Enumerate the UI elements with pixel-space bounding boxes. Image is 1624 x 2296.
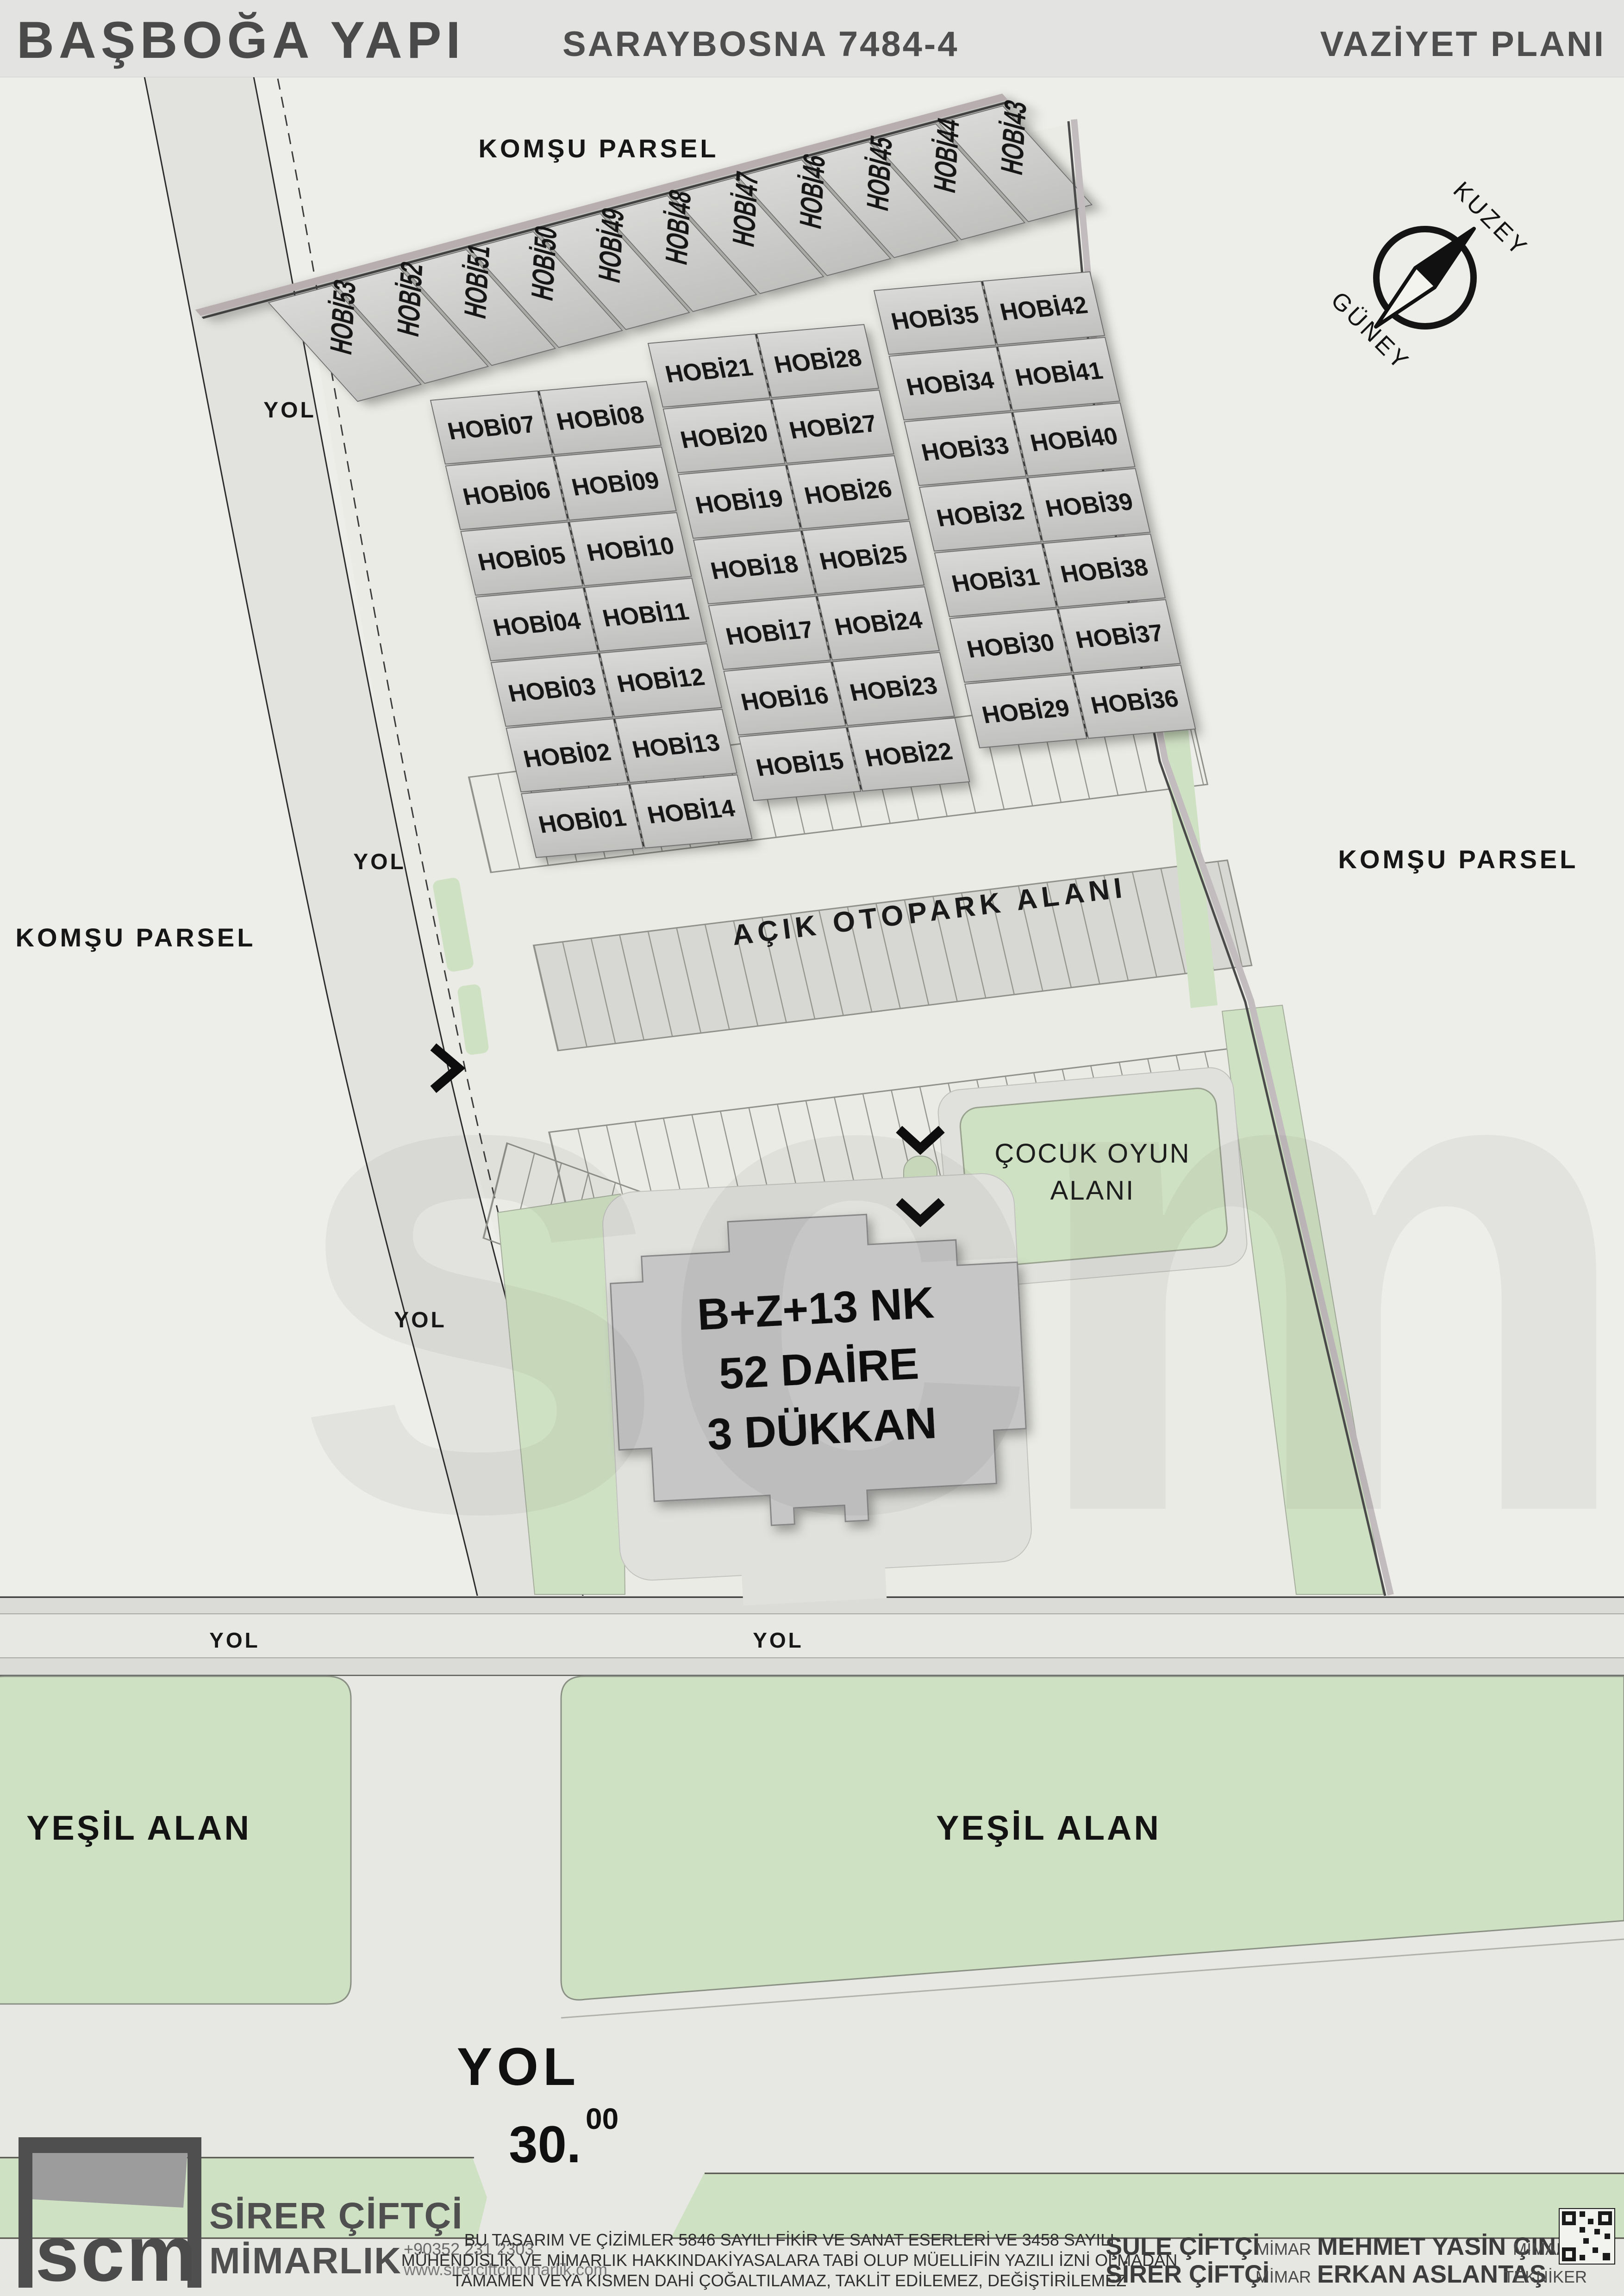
credit-title: MİMAR	[1255, 2240, 1311, 2259]
plot-label: HOBİ46	[793, 150, 832, 232]
plot-label: HOBİ48	[659, 186, 698, 268]
plot-label: HOBİ50	[525, 222, 564, 304]
legal-line-2: MÜHENDİSLİK VE MİMARLIK HAKKINDAKİYASALA…	[401, 2251, 1177, 2270]
logo-lintel	[32, 2153, 187, 2208]
watermark-text: scm	[287, 880, 1621, 1656]
label-road-big: YOL	[457, 2037, 580, 2097]
green-strip-southeast	[670, 2172, 1624, 2239]
firm-logo: scm	[19, 2137, 201, 2296]
plan-type-title: VAZİYET PLANI	[1320, 24, 1605, 64]
credit-name: ŞULE ÇİFTÇİ	[1106, 2233, 1260, 2260]
legal-line-3: TAMAMEN VEYA KISMEN DAHİ ÇOĞALTILAMAZ, T…	[452, 2271, 1126, 2290]
label-road-width-sup: 00	[586, 2102, 618, 2135]
plot-label: HOBİ44	[928, 114, 966, 196]
label-road-4: YOL	[209, 1628, 260, 1652]
firm-name-line2: MİMARLIK	[209, 2240, 402, 2281]
title-bar: BAŞBOĞA YAPI SARAYBOSNA 7484-4 VAZİYET P…	[0, 0, 1624, 77]
logo-abbrev: scm	[35, 2210, 198, 2296]
site-plan-sheet: B+Z+13 NK 52 DAİRE 3 DÜKKAN HOBİ53 HOBİ5…	[0, 0, 1624, 2296]
firm-name-line1: SİRER ÇİFTÇİ	[209, 2195, 463, 2236]
label-road-1: YOL	[263, 398, 316, 423]
credit-name: SİRER ÇİFTÇİ	[1106, 2260, 1269, 2288]
plot-label: HOBİ53	[324, 276, 362, 358]
credit-title: TEKNİKER	[1504, 2267, 1587, 2286]
label-neighbor-parcel-right: KOMŞU PARSEL	[1338, 845, 1579, 874]
plot-label: HOBİ45	[861, 132, 899, 214]
qr-code	[1559, 2209, 1615, 2264]
logo-frame-left	[19, 2137, 32, 2288]
label-road-width: 30.	[509, 2116, 581, 2173]
label-neighbor-parcel-left: KOMŞU PARSEL	[16, 923, 256, 952]
plot-label: HOBİ47	[726, 168, 765, 250]
logo-frame-top	[19, 2137, 201, 2153]
plot-label: HOBİ51	[458, 240, 497, 322]
project-subtitle: SARAYBOSNA 7484-4	[562, 24, 959, 64]
label-green-center: YEŞİL ALAN	[936, 1809, 1161, 1847]
plot-label: HOBİ49	[593, 204, 631, 286]
plot-label: HOBİ52	[391, 258, 430, 340]
south-road-sidewalk-south	[0, 1658, 1624, 1676]
legal-line-1: BU TASARIM VE ÇİZİMLER 5846 SAYILI FİKİR…	[464, 2230, 1115, 2249]
credit-title: MİMAR	[1255, 2267, 1311, 2286]
plot-label: HOBİ43	[995, 96, 1033, 178]
label-neighbor-parcel-top: KOMŞU PARSEL	[479, 134, 719, 163]
label-green-west: YEŞİL ALAN	[26, 1809, 251, 1847]
label-road-2: YOL	[353, 850, 406, 874]
project-title: BAŞBOĞA YAPI	[17, 10, 465, 70]
site-plan-drawing: B+Z+13 NK 52 DAİRE 3 DÜKKAN HOBİ53 HOBİ5…	[0, 0, 1624, 2296]
